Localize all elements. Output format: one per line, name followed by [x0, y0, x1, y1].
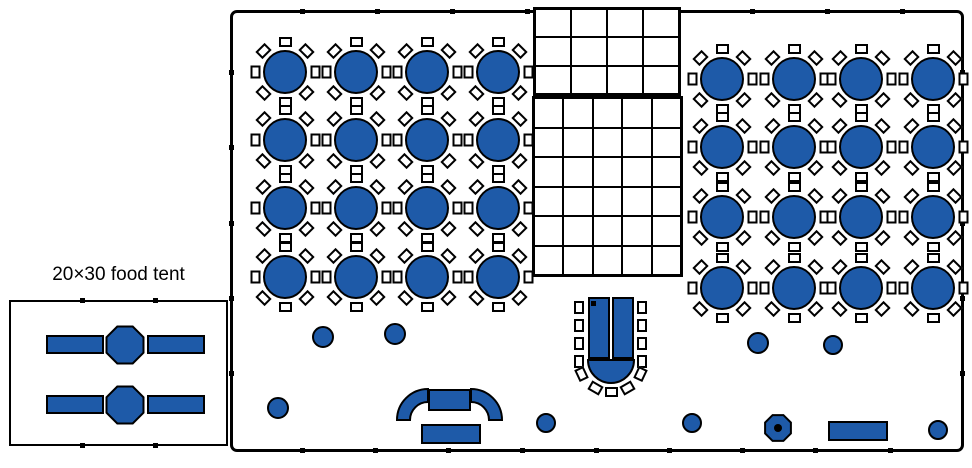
chair	[492, 242, 505, 252]
chair	[524, 202, 534, 215]
chair	[421, 105, 434, 115]
dance-floor-cell	[593, 216, 622, 246]
dance-floor-cell	[563, 157, 592, 187]
serving-lower-table	[421, 424, 481, 444]
chair	[492, 302, 505, 312]
dance-floor-cell	[593, 128, 622, 158]
chair	[464, 134, 474, 147]
dance-floor-cell	[534, 98, 563, 128]
chair	[760, 141, 770, 154]
chair	[350, 242, 363, 252]
chair	[688, 282, 698, 295]
cocktail-table	[823, 335, 843, 355]
guest-table	[476, 50, 520, 94]
chair	[788, 172, 801, 182]
chair	[393, 134, 403, 147]
guest-table	[334, 255, 378, 299]
chair	[788, 44, 801, 54]
guest-table	[839, 125, 883, 169]
dance-floor-cell	[622, 157, 651, 187]
chair	[453, 271, 463, 284]
tent-pole-tick	[229, 70, 234, 75]
chair	[464, 271, 474, 284]
guest-table	[839, 57, 883, 101]
chair	[827, 282, 837, 295]
chair	[350, 105, 363, 115]
chair	[827, 141, 837, 154]
guest-table	[772, 57, 816, 101]
chair	[311, 271, 321, 284]
head-table-chair	[637, 319, 647, 332]
tent-pole-tick	[375, 9, 380, 14]
chair	[855, 313, 868, 323]
dance-floor-cell	[593, 157, 622, 187]
chair	[887, 282, 897, 295]
chair	[748, 282, 758, 295]
dance-floor-cell	[607, 37, 643, 65]
chair	[788, 242, 801, 252]
dance-floor-cell	[652, 98, 681, 128]
guest-table	[700, 125, 744, 169]
dance-floor-cell	[534, 216, 563, 246]
chair	[279, 105, 292, 115]
chair	[350, 173, 363, 183]
tent-pole-tick	[813, 448, 818, 453]
tent-pole-tick	[80, 443, 85, 448]
chair	[887, 73, 897, 86]
tent-pole-tick	[229, 296, 234, 301]
chair	[959, 211, 969, 224]
guest-table	[772, 266, 816, 310]
chair	[382, 271, 392, 284]
chair	[760, 73, 770, 86]
chair	[788, 253, 801, 263]
chair	[927, 112, 940, 122]
chair	[716, 44, 729, 54]
guest-table	[772, 125, 816, 169]
chair	[382, 134, 392, 147]
chair	[279, 173, 292, 183]
tent-pole-tick	[229, 145, 234, 150]
head-table-chair	[574, 319, 584, 332]
head-table-chair	[637, 337, 647, 350]
chair	[350, 37, 363, 47]
dance-floor-cell	[622, 128, 651, 158]
guest-table	[476, 255, 520, 299]
guest-table	[911, 57, 955, 101]
chair	[251, 66, 261, 79]
head-table-chair	[574, 337, 584, 350]
dance-floor-cell	[607, 66, 643, 94]
tent-pole-tick	[300, 448, 305, 453]
chair	[827, 211, 837, 224]
chair	[453, 202, 463, 215]
chair	[887, 141, 897, 154]
cocktail-table	[267, 397, 289, 419]
dance-floor-cell	[593, 98, 622, 128]
chair	[927, 44, 940, 54]
tent-pole-tick	[594, 448, 599, 453]
dance-floor-cell	[571, 9, 607, 37]
dance-floor-cell	[535, 66, 571, 94]
guest-table	[700, 57, 744, 101]
dance-floor-cell	[563, 128, 592, 158]
chair	[382, 202, 392, 215]
guest-table	[263, 255, 307, 299]
chair	[524, 134, 534, 147]
head-table-chair	[605, 387, 618, 397]
chair	[393, 271, 403, 284]
dance-floor-cell	[643, 66, 679, 94]
guest-table	[263, 118, 307, 162]
dance-floor-cell	[563, 216, 592, 246]
event-floor-plan: 20×30 food tent	[0, 0, 972, 468]
dance-floor-cell	[652, 128, 681, 158]
chair	[464, 202, 474, 215]
chair	[688, 73, 698, 86]
chair	[855, 253, 868, 263]
chair	[393, 66, 403, 79]
chair	[279, 242, 292, 252]
guest-table	[405, 50, 449, 94]
chair	[748, 73, 758, 86]
chair	[716, 172, 729, 182]
dance-floor-cell	[534, 157, 563, 187]
chair	[251, 202, 261, 215]
head-table-section	[612, 297, 634, 359]
cocktail-table	[928, 420, 948, 440]
chair	[350, 302, 363, 312]
chair	[887, 211, 897, 224]
dance-floor-cell	[563, 98, 592, 128]
dance-floor-cell	[563, 246, 592, 276]
food-tent-outline	[9, 300, 228, 446]
chair	[927, 182, 940, 192]
chair	[492, 173, 505, 183]
guest-table	[263, 186, 307, 230]
chair	[899, 211, 909, 224]
chair	[855, 44, 868, 54]
dance-floor-cell	[643, 37, 679, 65]
chair	[959, 282, 969, 295]
dance-floor-cell	[535, 37, 571, 65]
chair	[748, 141, 758, 154]
chair	[855, 172, 868, 182]
chair	[927, 242, 940, 252]
head-table-chair	[574, 301, 584, 314]
dance-floor-cell	[571, 66, 607, 94]
guest-table	[405, 186, 449, 230]
chair	[421, 37, 434, 47]
guest-table	[911, 195, 955, 239]
chair	[716, 182, 729, 192]
buffet-table	[147, 395, 205, 414]
tent-pole-tick	[520, 448, 525, 453]
chair	[322, 202, 332, 215]
guest-table	[334, 118, 378, 162]
tent-pole-tick	[900, 9, 905, 14]
chair	[279, 302, 292, 312]
chair	[393, 202, 403, 215]
cocktail-table	[747, 332, 769, 354]
dance-floor-cell	[652, 157, 681, 187]
head-table-chair	[637, 301, 647, 314]
head-table-section	[588, 297, 610, 359]
chair	[899, 141, 909, 154]
dance-floor-grid	[532, 96, 683, 277]
dance-floor-cell	[593, 246, 622, 276]
tent-pole-tick	[446, 448, 451, 453]
chair	[464, 66, 474, 79]
tent-pole-tick	[300, 9, 305, 14]
chair	[855, 112, 868, 122]
chair	[688, 141, 698, 154]
dance-floor-cell	[563, 187, 592, 217]
chair	[899, 73, 909, 86]
dance-floor-cell	[534, 187, 563, 217]
chair	[322, 134, 332, 147]
food-tent-label: 20×30 food tent	[9, 264, 228, 286]
tent-pole-tick	[153, 443, 158, 448]
guest-table	[700, 195, 744, 239]
chair	[311, 134, 321, 147]
tent-pole-tick	[80, 298, 85, 303]
chair	[421, 173, 434, 183]
dance-floor-cell	[643, 9, 679, 37]
cocktail-table	[682, 413, 702, 433]
dance-floor-cell	[622, 216, 651, 246]
dance-floor-cell	[652, 246, 681, 276]
tent-pole-tick	[750, 9, 755, 14]
chair	[788, 112, 801, 122]
head-table-marker	[591, 301, 596, 306]
dance-floor-cell	[535, 9, 571, 37]
chair	[524, 271, 534, 284]
guest-table	[911, 266, 955, 310]
chair	[788, 182, 801, 192]
guest-table	[700, 266, 744, 310]
chair	[716, 313, 729, 323]
chair	[855, 242, 868, 252]
chair	[311, 66, 321, 79]
chair	[748, 211, 758, 224]
guest-table	[911, 125, 955, 169]
chair	[279, 37, 292, 47]
guest-table	[476, 118, 520, 162]
guest-table	[476, 186, 520, 230]
serving-center-table	[428, 389, 471, 411]
tent-pole-tick	[667, 448, 672, 453]
chair	[311, 202, 321, 215]
buffet-table	[147, 335, 205, 354]
dance-floor-cell	[534, 246, 563, 276]
chair	[927, 253, 940, 263]
chair	[524, 66, 534, 79]
chair	[788, 313, 801, 323]
dance-floor-cell	[593, 187, 622, 217]
chair	[716, 112, 729, 122]
chair	[760, 211, 770, 224]
tent-pole-tick	[740, 448, 745, 453]
buffet-table	[46, 335, 104, 354]
tent-pole-tick	[153, 298, 158, 303]
chair	[453, 66, 463, 79]
gift-table	[828, 421, 888, 441]
guest-table	[839, 195, 883, 239]
cocktail-table	[312, 326, 334, 348]
chair	[927, 313, 940, 323]
chair	[855, 182, 868, 192]
chair	[927, 172, 940, 182]
guest-table	[334, 50, 378, 94]
tent-pole-tick	[229, 221, 234, 226]
guest-table	[334, 186, 378, 230]
chair	[959, 73, 969, 86]
chair	[716, 253, 729, 263]
chair	[688, 211, 698, 224]
chair	[827, 73, 837, 86]
tent-pole-tick	[373, 448, 378, 453]
dance-floor-cell	[652, 216, 681, 246]
chair	[322, 271, 332, 284]
dance-floor-cell	[622, 246, 651, 276]
chair	[959, 141, 969, 154]
chair	[251, 134, 261, 147]
dance-floor-cell	[622, 98, 651, 128]
chair	[716, 242, 729, 252]
chair	[382, 66, 392, 79]
dance-floor-grid	[533, 7, 681, 96]
dance-floor-cell	[607, 9, 643, 37]
chair	[421, 302, 434, 312]
guest-table	[405, 118, 449, 162]
guest-table	[839, 266, 883, 310]
dance-floor-cell	[534, 128, 563, 158]
tent-pole-tick	[960, 296, 965, 301]
cocktail-table	[536, 413, 556, 433]
tent-pole-tick	[888, 448, 893, 453]
cocktail-table	[384, 323, 406, 345]
tent-pole-tick	[450, 9, 455, 14]
tent-pole-tick	[229, 371, 234, 376]
chair	[453, 134, 463, 147]
guest-table	[772, 195, 816, 239]
chair	[251, 271, 261, 284]
chair	[492, 105, 505, 115]
chair	[492, 37, 505, 47]
chair	[760, 282, 770, 295]
guest-table	[405, 255, 449, 299]
chair	[322, 66, 332, 79]
chair	[421, 242, 434, 252]
chair	[899, 282, 909, 295]
dance-floor-cell	[571, 37, 607, 65]
buffet-table	[46, 395, 104, 414]
tent-pole-tick	[825, 9, 830, 14]
dance-floor-cell	[652, 187, 681, 217]
guest-table	[263, 50, 307, 94]
tent-pole-tick	[525, 9, 530, 14]
dance-floor-cell	[622, 187, 651, 217]
tent-pole-tick	[960, 371, 965, 376]
